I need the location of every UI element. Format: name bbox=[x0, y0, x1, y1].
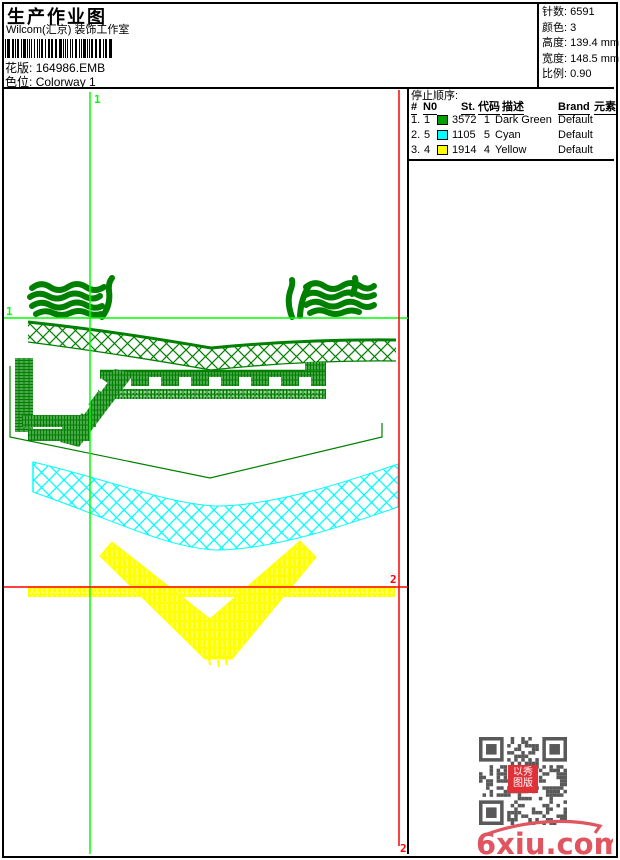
scale-value: 0.90 bbox=[570, 68, 591, 80]
grass-stitches-right bbox=[289, 278, 374, 317]
qr-seal-stamp: 以秀 图版 bbox=[508, 765, 538, 793]
cyan-crosshatch-band bbox=[33, 462, 398, 550]
grass-stitches-left bbox=[30, 278, 112, 317]
barcode bbox=[5, 39, 115, 58]
colorway-line: 色位: Colorway 1 bbox=[5, 75, 96, 89]
colorway-label: 色位: bbox=[5, 75, 32, 89]
thread-color-swatch bbox=[437, 115, 448, 125]
green-belt bbox=[15, 358, 326, 447]
guide-label-2-bottom: 2 bbox=[400, 842, 407, 854]
row-n0: 5 bbox=[424, 129, 430, 142]
color-count-value: 3 bbox=[570, 22, 576, 34]
studio-subtitle: Wilcom(汇京) 装饰工作室 bbox=[6, 24, 129, 37]
row-desc: Yellow bbox=[495, 144, 526, 157]
stitch-count-label: 针数: bbox=[542, 6, 567, 18]
col-header-st: St. bbox=[461, 101, 475, 115]
qr-code: 以秀 图版 bbox=[479, 737, 567, 825]
row-desc: Dark Green bbox=[495, 114, 552, 127]
design-canvas: 1 1 2 2 bbox=[4, 90, 408, 854]
col-header-desc: 描述 bbox=[502, 101, 524, 115]
yellow-checkmark bbox=[100, 541, 316, 667]
pattern-file-line: 花版: 164986.EMB bbox=[5, 61, 105, 75]
row-n0: 4 bbox=[424, 144, 430, 157]
guide-label-1-left: 1 bbox=[6, 305, 13, 318]
stitch-count-line: 针数: 6591 bbox=[542, 5, 619, 21]
scale-line: 比例: 0.90 bbox=[542, 67, 619, 83]
pattern-file-label: 花版: bbox=[5, 61, 32, 75]
row-num: 1. bbox=[411, 114, 420, 127]
col-header-elem: 元素 bbox=[594, 101, 616, 115]
guide-label-1-top: 1 bbox=[94, 93, 101, 106]
scale-label: 比例: bbox=[542, 68, 567, 80]
row-num: 2. bbox=[411, 129, 420, 142]
width-value: 148.5 mm bbox=[570, 53, 619, 65]
info-box-separator bbox=[537, 2, 539, 87]
color-count-label: 颜色: bbox=[542, 22, 567, 34]
row-n0: 1 bbox=[424, 114, 430, 127]
stop-sequence-table: 停止顺序: # N0 St. 代码 描述 Brand 元素 1. 1 3572 … bbox=[408, 88, 615, 159]
height-value: 139.4 mm bbox=[570, 37, 619, 49]
watermark: 6xiu.com bbox=[468, 816, 613, 858]
row-num: 3. bbox=[411, 144, 420, 157]
seal-text-line1: 以秀 bbox=[508, 767, 538, 778]
width-label: 宽度: bbox=[542, 53, 567, 65]
pattern-file-value: 164986.EMB bbox=[36, 61, 105, 75]
color-count-line: 颜色: 3 bbox=[542, 21, 619, 37]
watermark-text: 6xiu.com bbox=[476, 827, 613, 858]
production-worksheet: 生产作业图 Wilcom(汇京) 装饰工作室 花版: 164986.EMB 色位… bbox=[0, 0, 620, 860]
guide-label-2-right: 2 bbox=[390, 573, 397, 586]
row-brand: Default bbox=[558, 129, 593, 142]
row-code: 1 bbox=[470, 114, 490, 127]
stop-table-bottom-border bbox=[408, 159, 614, 161]
thread-color-swatch bbox=[437, 145, 448, 155]
width-line: 宽度: 148.5 mm bbox=[542, 52, 619, 68]
row-code: 4 bbox=[470, 144, 490, 157]
row-desc: Cyan bbox=[495, 129, 521, 142]
col-header-code: 代码 bbox=[478, 101, 500, 115]
thread-color-swatch bbox=[437, 130, 448, 140]
design-info-box: 针数: 6591 颜色: 3 高度: 139.4 mm 宽度: 148.5 mm… bbox=[542, 5, 619, 83]
col-header-brand: Brand bbox=[558, 101, 590, 115]
col-header-num: # bbox=[411, 101, 417, 115]
height-label: 高度: bbox=[542, 37, 567, 49]
col-header-n0: N0 bbox=[423, 101, 437, 115]
colorway-value: Colorway 1 bbox=[36, 75, 96, 89]
height-line: 高度: 139.4 mm bbox=[542, 36, 619, 52]
row-code: 5 bbox=[470, 129, 490, 142]
stitch-count-value: 6591 bbox=[570, 6, 594, 18]
row-brand: Default bbox=[558, 144, 593, 157]
seal-text-line2: 图版 bbox=[508, 778, 538, 789]
green-crosshatch-band bbox=[28, 322, 396, 370]
row-brand: Default bbox=[558, 114, 593, 127]
